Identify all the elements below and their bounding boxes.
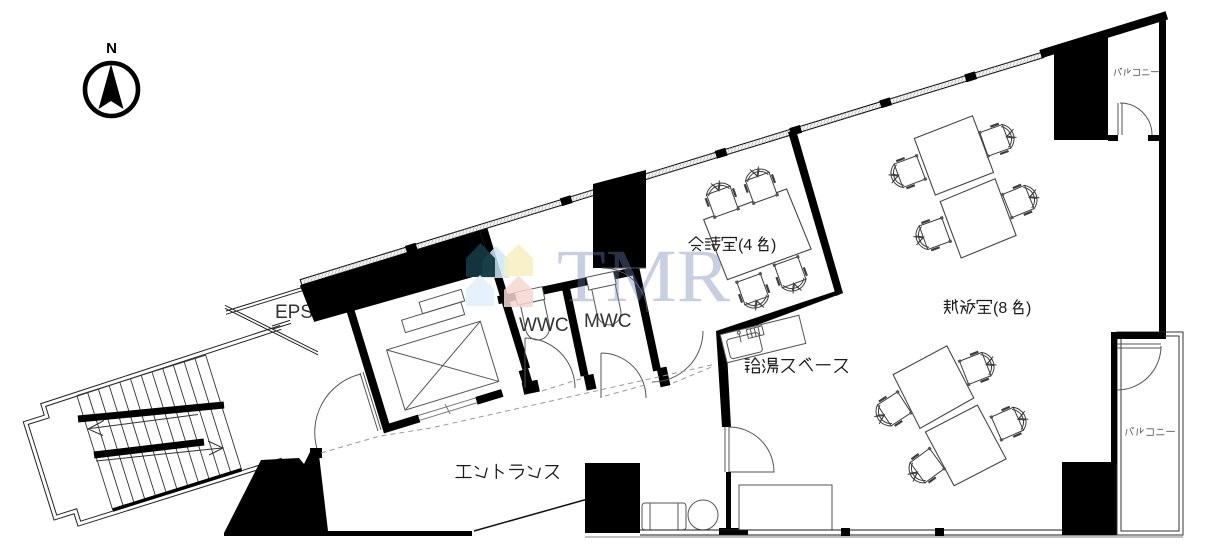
svg-text:(8: (8	[993, 300, 1007, 317]
svg-text:TMR: TMR	[557, 235, 730, 318]
svg-text:N: N	[106, 40, 117, 57]
svg-text:EPS: EPS	[275, 302, 313, 323]
svg-text:(4: (4	[738, 237, 752, 254]
svg-text:): )	[1026, 300, 1031, 317]
svg-text:WWC: WWC	[519, 315, 569, 336]
svg-text:): )	[771, 237, 776, 254]
